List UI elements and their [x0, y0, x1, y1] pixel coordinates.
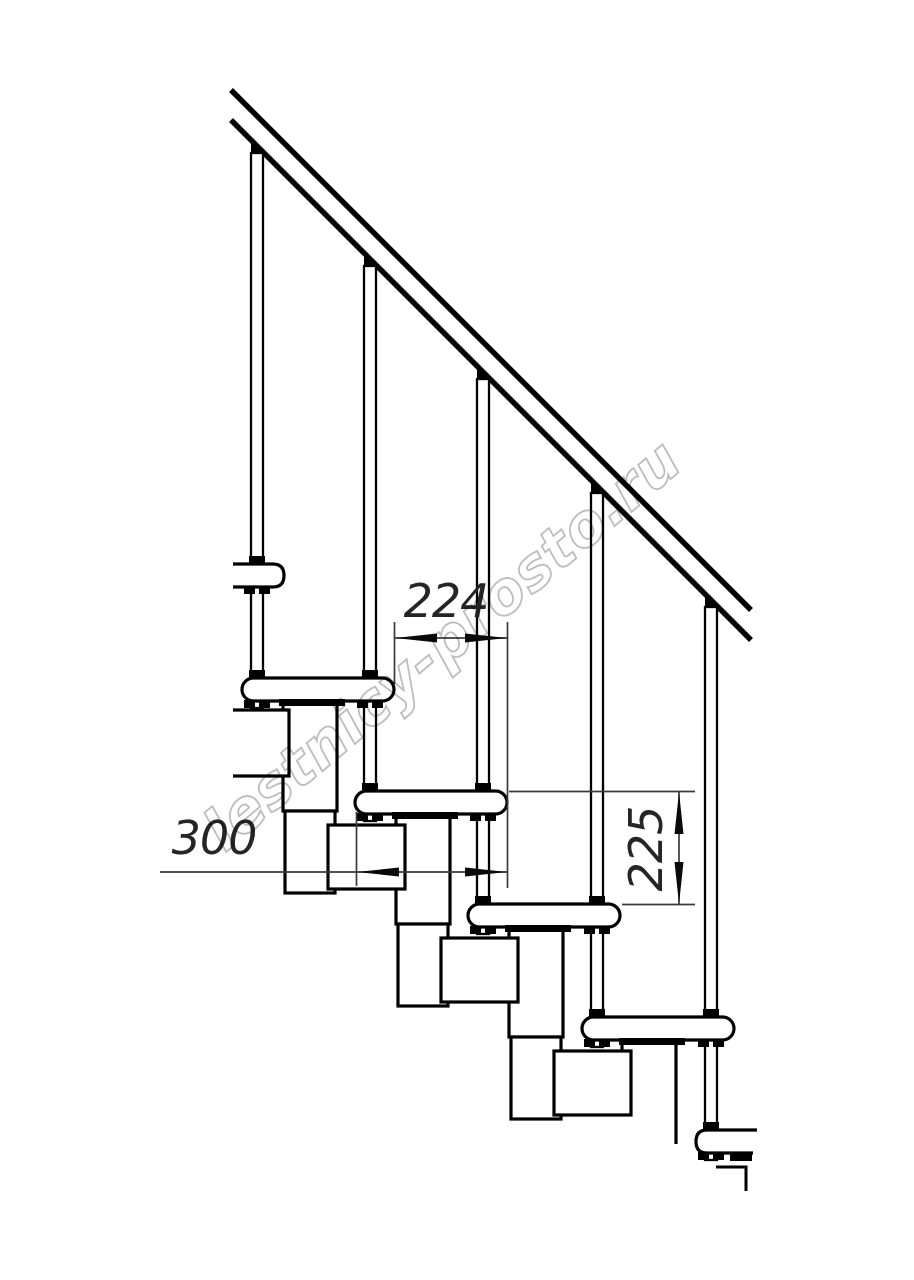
module-sleeve — [328, 825, 405, 889]
arrowhead — [675, 792, 684, 834]
flange — [392, 812, 458, 819]
staircase-drawing: 224 300 225 lestnicy-prosto.ru — [0, 0, 914, 1280]
module-sleeve — [554, 1051, 631, 1115]
handrail — [231, 90, 751, 640]
baluster — [251, 153, 263, 708]
baluster — [705, 607, 717, 1160]
arrowhead — [675, 862, 684, 904]
tread-stub-top — [233, 564, 284, 587]
balusters — [251, 153, 717, 1160]
baluster — [591, 493, 603, 1047]
flange — [505, 925, 571, 932]
tread — [468, 904, 620, 927]
tread-stub-bottom — [696, 1130, 757, 1153]
tread — [355, 791, 507, 814]
dim-label-225: 225 — [619, 807, 673, 892]
flange — [619, 1038, 685, 1045]
drawing-svg: 224 300 225 lestnicy-prosto.ru — [0, 0, 914, 1280]
tread — [582, 1017, 734, 1040]
module-sleeve — [441, 938, 518, 1002]
